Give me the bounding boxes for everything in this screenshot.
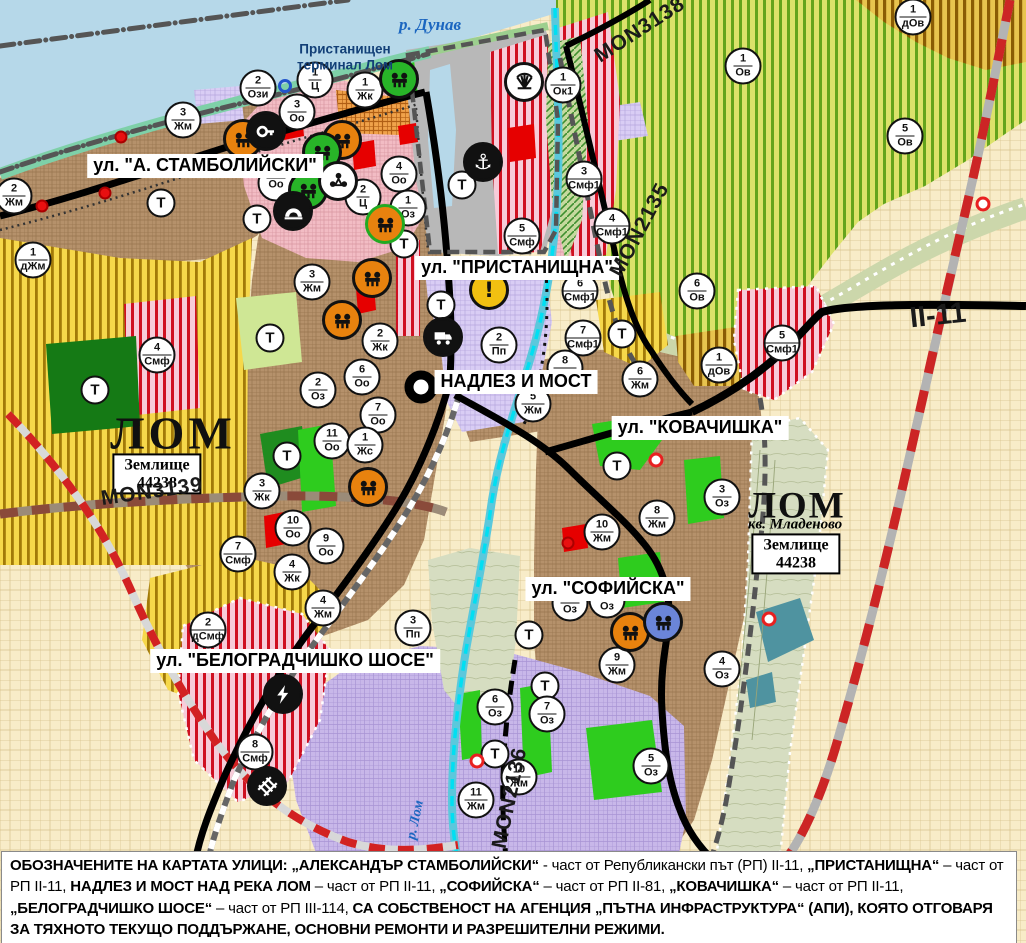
footer-segment: - част от Републикански път (РП) II-11, xyxy=(539,857,807,874)
footer-segment: – част от РП II-81, xyxy=(540,878,670,895)
zoning-map: 2Жм1дЖмТ3ЖмТ2Ози3Оо1Ц1ЖкОо4Оо2Ц1ОзТ4СмфТ… xyxy=(0,0,1026,943)
footer-segment: „СОФИЙСКА“ xyxy=(439,878,539,895)
footer-note: ОБОЗНАЧЕНИТЕ НА КАРТАТА УЛИЦИ: „АЛЕКСАНД… xyxy=(1,851,1017,943)
map-canvas xyxy=(0,0,1026,943)
footer-segment: – част от РП II-11, xyxy=(311,878,439,895)
footer-segment: „КОВАЧИШКА“ xyxy=(669,878,779,895)
footer-segment: „ПРИСТАНИЩНА“ xyxy=(807,857,939,874)
footer-text: ОБОЗНАЧЕНИТЕ НА КАРТАТА УЛИЦИ: „АЛЕКСАНД… xyxy=(10,855,1008,940)
footer-segment: „БЕЛОГРАДЧИШКО ШОСЕ“ xyxy=(10,900,212,917)
footer-segment: НАДЛЕЗ И МОСТ НАД РЕКА ЛОМ xyxy=(70,878,311,895)
footer-segment: ОБОЗНАЧЕНИТЕ НА КАРТАТА УЛИЦИ: „АЛЕКСАНД… xyxy=(10,857,539,874)
footer-segment: – част от РП II-11, xyxy=(779,878,903,895)
footer-segment: – част от РП III-114, xyxy=(212,900,353,917)
